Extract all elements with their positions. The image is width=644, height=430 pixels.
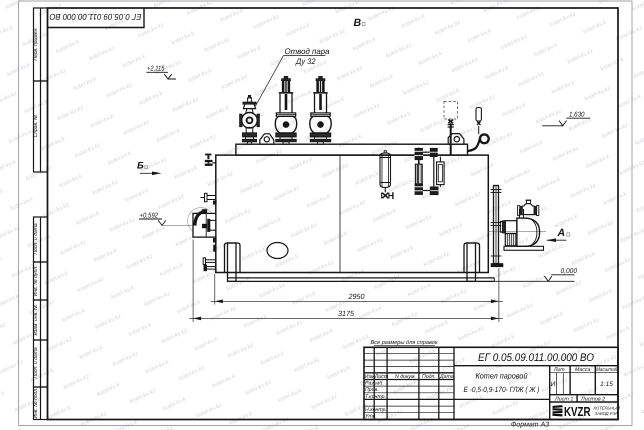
svg-text:Е -0,5-0,9-170- ГЛЖ ( Ж ): Е -0,5-0,9-170- ГЛЖ ( Ж ) [464, 385, 540, 394]
svg-text:КОТЕЛЬНЫЙ: КОТЕЛЬНЫЙ [594, 406, 620, 411]
svg-text:Лит.: Лит. [553, 367, 566, 373]
svg-text:Инв. № подл.: Инв. № подл. [33, 387, 39, 418]
svg-text:Подп. и дата: Подп. и дата [33, 347, 39, 379]
svg-text:1:15: 1:15 [600, 381, 613, 388]
svg-text:Лист 1: Лист 1 [554, 397, 573, 403]
svg-text:А: А [557, 227, 566, 239]
svg-text:Лист: Лист [374, 374, 389, 380]
svg-text:Пров.: Пров. [365, 387, 379, 393]
svg-text:0,000: 0,000 [561, 268, 578, 275]
svg-text:+0,592: +0,592 [140, 212, 159, 219]
svg-text:Котел паровой: Котел паровой [476, 372, 528, 381]
svg-text:Подп.: Подп. [422, 374, 436, 380]
svg-text:ЕГ 0.05.09.011.00.000 ВО: ЕГ 0.05.09.011.00.000 ВО [478, 352, 594, 364]
svg-text:Отвод пара: Отвод пара [285, 47, 331, 56]
svg-text:1,630: 1,630 [569, 112, 585, 119]
svg-text:N докум.: N докум. [395, 374, 416, 380]
svg-text:Взам. инв. №: Взам. инв. № [33, 304, 39, 336]
svg-text:Перв. примен.: Перв. примен. [33, 27, 39, 60]
svg-text:Листов 2: Листов 2 [580, 397, 605, 403]
svg-text:ЗАВОД РЭП: ЗАВОД РЭП [595, 411, 620, 416]
svg-text:Масса: Масса [575, 367, 590, 373]
svg-text:Дата: Дата [439, 374, 454, 380]
svg-text:KVZR: KVZR [564, 404, 591, 419]
svg-text:Инв. № дубл.: Инв. № дубл. [33, 266, 39, 297]
svg-text:Разраб.: Разраб. [365, 381, 384, 387]
svg-text:В: В [354, 17, 362, 29]
svg-text:Подп. и дата: Подп. и дата [33, 223, 39, 255]
svg-text:И: И [551, 381, 556, 388]
svg-text:2950: 2950 [348, 292, 366, 301]
svg-text:Все размеры для справок: Все размеры для справок [371, 339, 438, 346]
svg-text:Б: Б [137, 160, 144, 171]
svg-text:Справ. №: Справ. № [33, 114, 39, 137]
svg-text:Масштаб: Масштаб [596, 367, 618, 373]
svg-text:Ду 32: Ду 32 [295, 57, 316, 66]
svg-text:3175: 3175 [338, 309, 355, 318]
svg-text:Т.контр.: Т.контр. [365, 394, 386, 400]
svg-text:Формат А3: Формат А3 [511, 422, 549, 429]
svg-text:ЕГ 0.05.09.011.00.000 ВО: ЕГ 0.05.09.011.00.000 ВО [49, 12, 141, 22]
svg-text:Н.контр.: Н.контр. [365, 407, 387, 413]
svg-text:+2,115: +2,115 [147, 66, 165, 73]
svg-text:Утв.: Утв. [365, 414, 377, 420]
